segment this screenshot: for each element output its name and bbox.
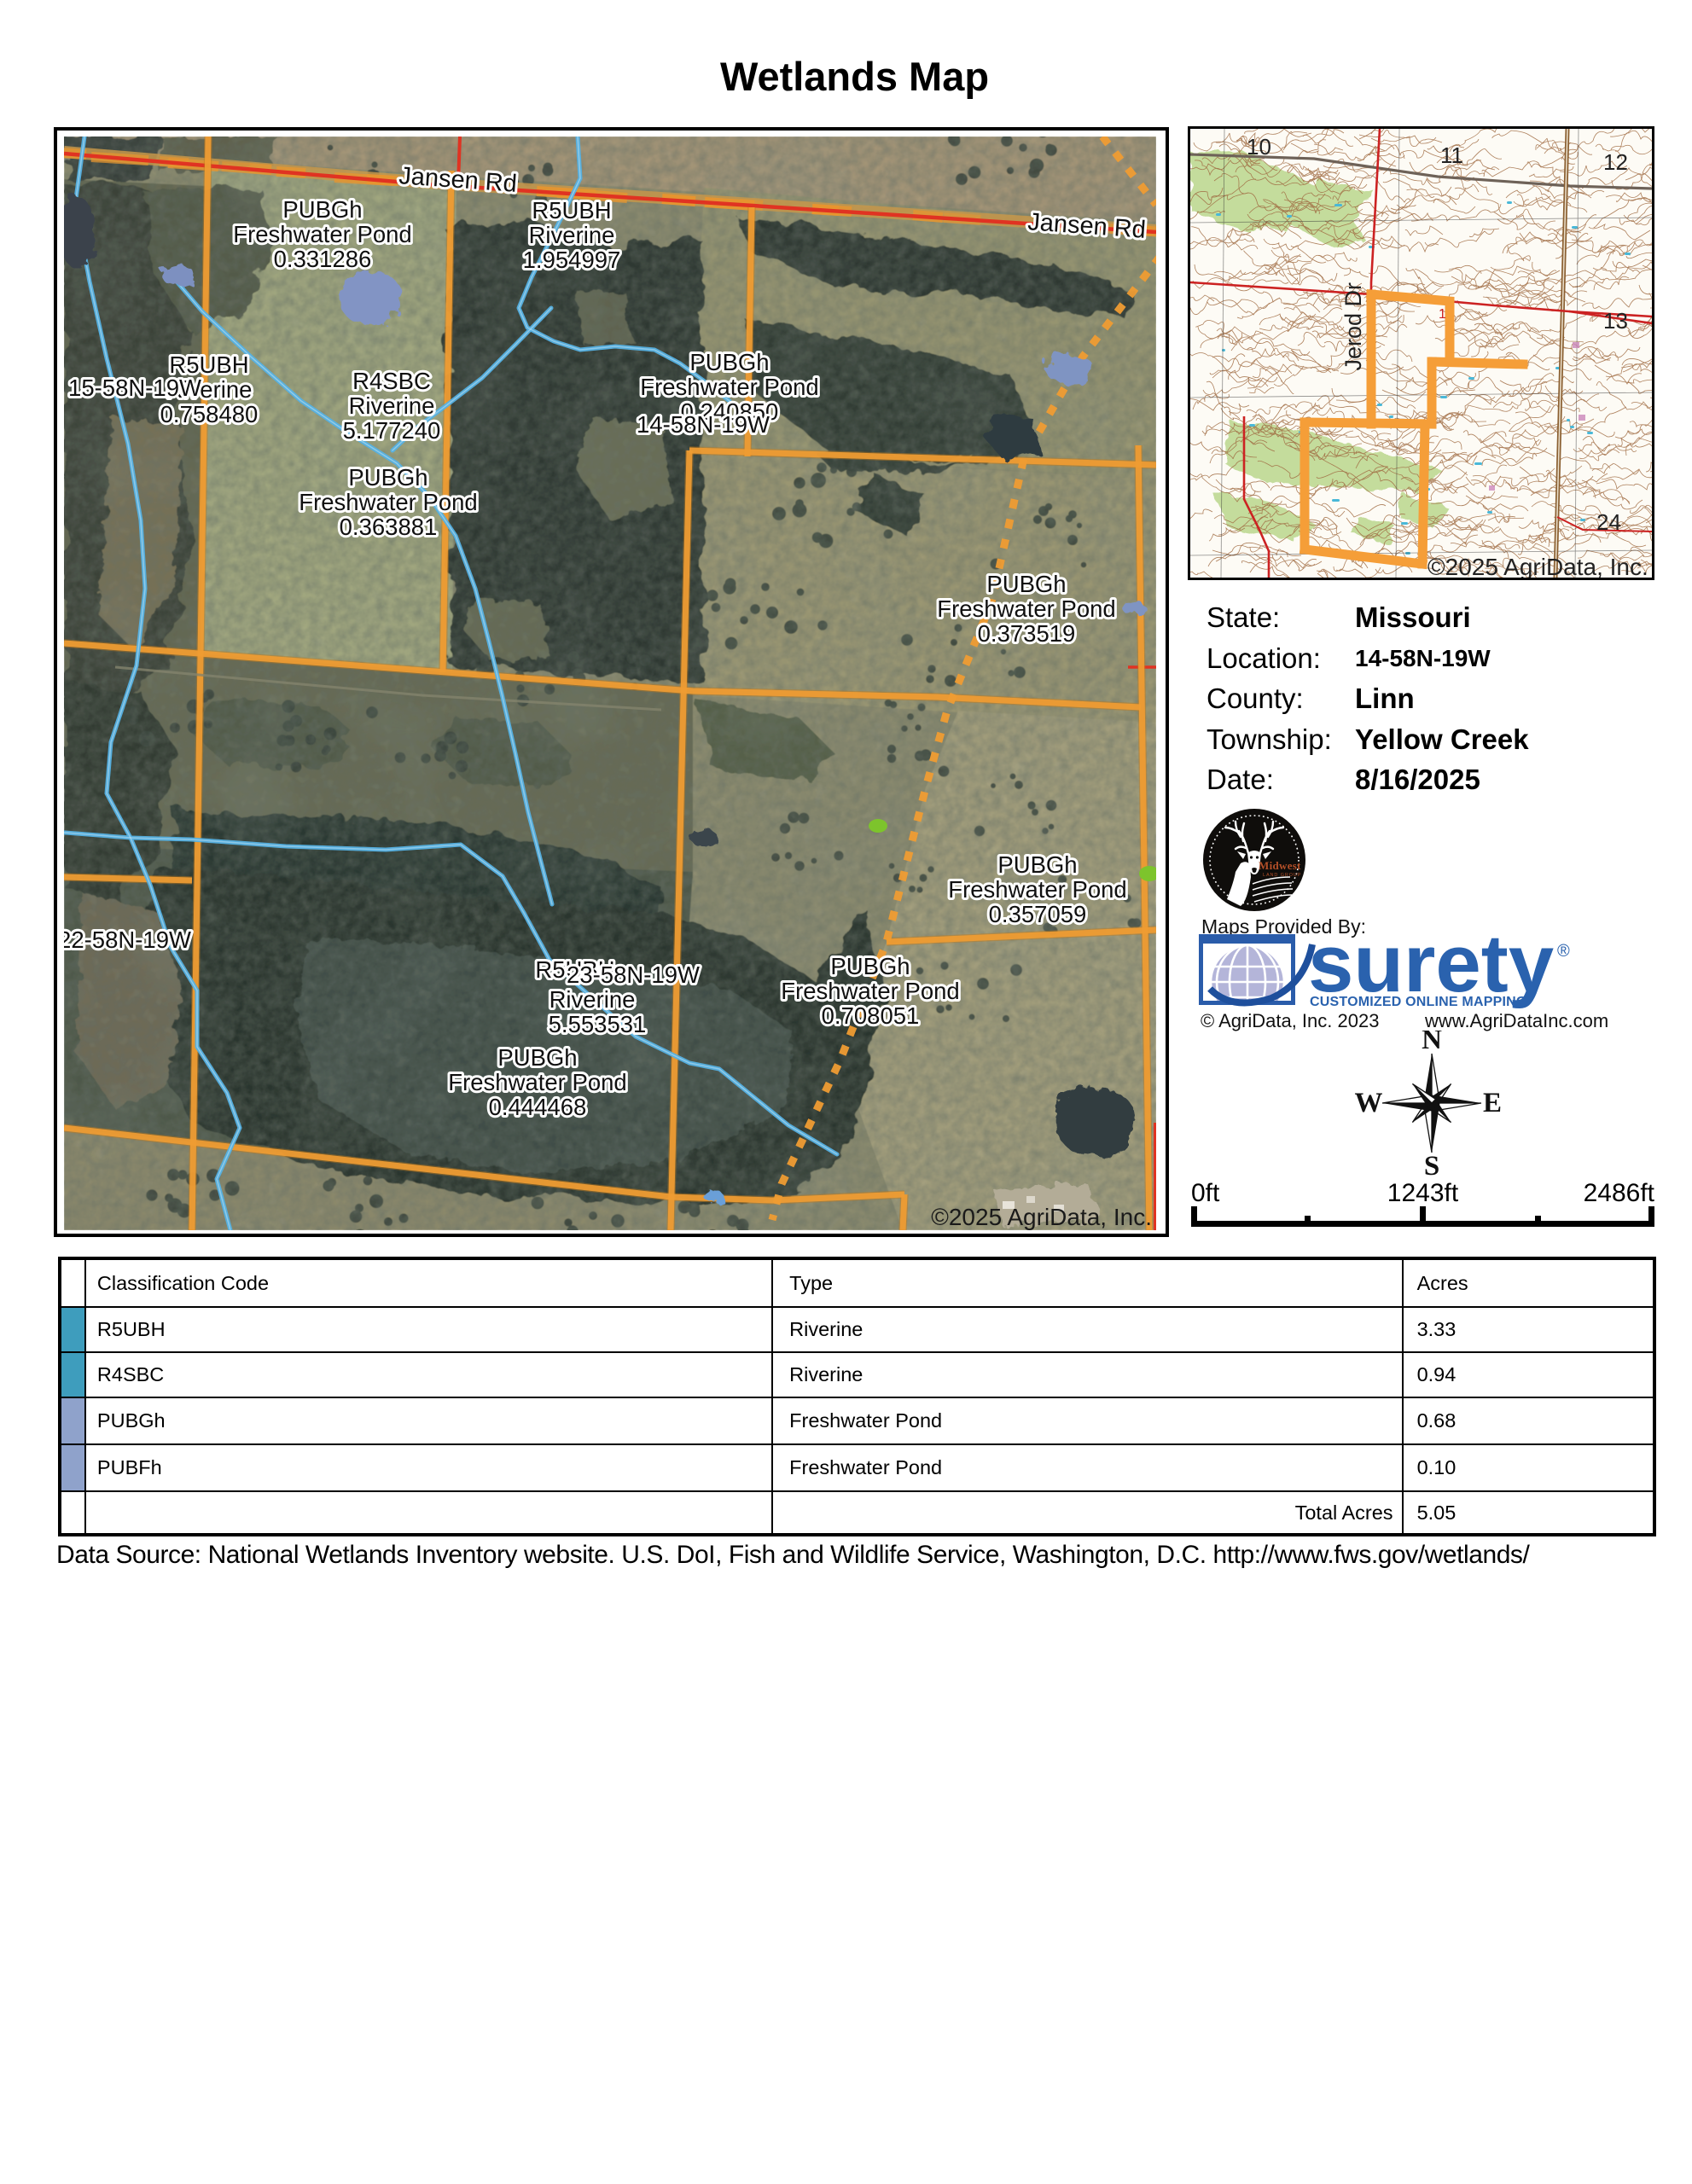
svg-text:©2025 AgriData, Inc.: ©2025 AgriData, Inc. xyxy=(1427,554,1648,578)
svg-text:®: ® xyxy=(1557,942,1570,961)
svg-text:0.363881: 0.363881 xyxy=(340,514,438,540)
svg-text:Midwest: Midwest xyxy=(1259,859,1301,872)
svg-text:0.373519: 0.373519 xyxy=(978,620,1076,647)
svg-text:LAND GROUP: LAND GROUP xyxy=(1263,873,1301,878)
svg-text:©2025 AgriData, Inc.: ©2025 AgriData, Inc. xyxy=(931,1204,1152,1230)
svg-text:5.553531: 5.553531 xyxy=(549,1011,647,1037)
svg-text:Jerod Dr: Jerod Dr xyxy=(1340,282,1366,371)
svg-text:Freshwater Pond: Freshwater Pond xyxy=(233,221,411,247)
svg-text:Freshwater Pond: Freshwater Pond xyxy=(299,489,477,515)
svg-text:PUBGh: PUBGh xyxy=(348,464,427,491)
svg-text:S: S xyxy=(1424,1151,1439,1176)
svg-text:N: N xyxy=(1422,1031,1442,1055)
svg-text:PUBGh: PUBGh xyxy=(830,953,910,979)
svg-text:PUBGh: PUBGh xyxy=(282,196,362,223)
svg-text:0.357059: 0.357059 xyxy=(989,901,1087,927)
svg-text:R5UBH: R5UBH xyxy=(532,197,611,224)
svg-text:0.708051: 0.708051 xyxy=(822,1002,920,1029)
svg-text:0.331286: 0.331286 xyxy=(274,246,372,272)
svg-text:0.758480: 0.758480 xyxy=(160,401,259,427)
svg-text:Freshwater Pond: Freshwater Pond xyxy=(937,595,1115,622)
svg-text:Freshwater Pond: Freshwater Pond xyxy=(781,978,959,1004)
svg-text:0.444468: 0.444468 xyxy=(489,1094,587,1120)
svg-text:PUBGh: PUBGh xyxy=(497,1044,577,1071)
svg-text:10: 10 xyxy=(1247,134,1271,160)
svg-text:Freshwater Pond: Freshwater Pond xyxy=(640,374,818,400)
svg-text:Freshwater Pond: Freshwater Pond xyxy=(948,876,1126,903)
svg-text:E: E xyxy=(1483,1088,1502,1118)
svg-text:CUSTOMIZED ONLINE MAPPING: CUSTOMIZED ONLINE MAPPING xyxy=(1310,995,1527,1009)
svg-text:24: 24 xyxy=(1596,509,1621,535)
svg-text:5.177240: 5.177240 xyxy=(343,417,441,444)
svg-text:11: 11 xyxy=(1440,142,1463,168)
svg-text:12: 12 xyxy=(1603,149,1628,175)
svg-text:1: 1 xyxy=(1439,307,1446,322)
svg-text:Riverine: Riverine xyxy=(549,986,636,1013)
svg-text:PUBGh: PUBGh xyxy=(986,571,1066,597)
svg-text:22-58N-19W: 22-58N-19W xyxy=(64,926,191,953)
svg-text:23-58N-19W: 23-58N-19W xyxy=(567,961,700,988)
svg-text:1.954997: 1.954997 xyxy=(523,247,621,273)
svg-text:W: W xyxy=(1355,1088,1383,1118)
svg-text:Freshwater Pond: Freshwater Pond xyxy=(448,1069,626,1095)
svg-text:13: 13 xyxy=(1603,308,1628,334)
svg-text:Riverine: Riverine xyxy=(349,392,435,419)
svg-text:PUBGh: PUBGh xyxy=(997,851,1077,878)
svg-text:Riverine: Riverine xyxy=(529,222,615,248)
svg-text:PUBGh: PUBGh xyxy=(689,349,769,375)
svg-text:15-58N-19W: 15-58N-19W xyxy=(68,375,201,401)
svg-text:14-58N-19W: 14-58N-19W xyxy=(637,411,770,438)
svg-text:R4SBC: R4SBC xyxy=(352,368,431,394)
